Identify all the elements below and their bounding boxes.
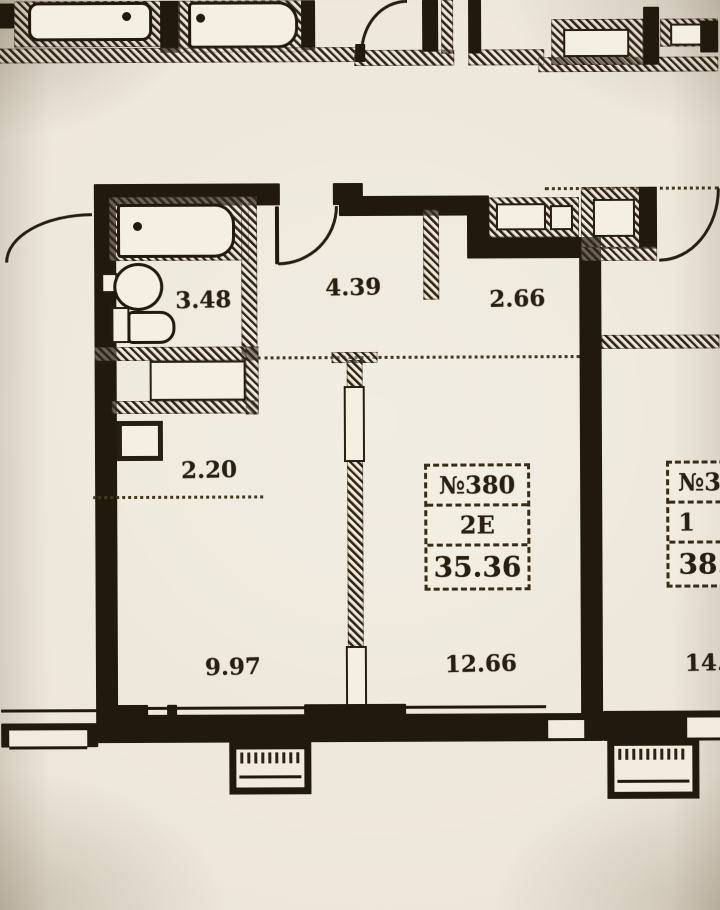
wall-right — [579, 237, 603, 739]
wall-closet — [112, 400, 259, 414]
wall-pier — [584, 703, 603, 717]
floor-plan-scan: 3.48 4.39 2.66 2.20 9.97 12.66 14. №380 … — [0, 0, 720, 910]
zone-dotted-line — [93, 495, 263, 499]
wall — [643, 7, 659, 65]
room-area-corridor: 2.20 — [176, 458, 242, 482]
wall-left — [94, 184, 118, 741]
wall-neighbor — [601, 334, 719, 349]
door-arc — [360, 0, 407, 53]
wall-bathroom — [95, 346, 258, 361]
door-arc — [659, 188, 720, 261]
neighbor-unit-badge: №3 1 38. — [666, 460, 720, 587]
duct-opening — [496, 203, 546, 230]
room-area-living: 12.66 — [444, 652, 518, 677]
room-area-neighbor: 14. — [685, 651, 720, 675]
unit-type: 2Е — [427, 506, 527, 546]
balcony-hatch — [240, 752, 300, 763]
wall-hatched — [0, 47, 360, 64]
wall — [700, 20, 718, 52]
room-area-bathroom: 3.48 — [167, 288, 239, 313]
wall-hatched — [581, 247, 657, 261]
bathtub-drain-icon — [122, 12, 131, 21]
balcony-hatch — [618, 749, 688, 760]
neighbor-unit-type: 1 — [669, 503, 720, 543]
neighbor-unit-area: 38. — [669, 543, 720, 584]
window-sill-line — [1, 709, 96, 712]
sink-icon — [113, 263, 163, 311]
wardrobe-icon — [150, 360, 246, 400]
neighbor-unit-number: №3 — [669, 463, 720, 503]
bathtub-drain-icon — [133, 222, 142, 231]
entry-door-arc — [278, 206, 338, 265]
duct-opening — [670, 24, 702, 46]
duct-opening — [563, 29, 629, 57]
room-area-bedroom: 9.97 — [201, 655, 265, 679]
unit-area: 35.36 — [427, 546, 527, 587]
door-leaf — [344, 386, 365, 462]
zone-dotted-line — [258, 355, 580, 359]
room-area-hallway: 4.39 — [317, 275, 389, 300]
wall-pier — [304, 704, 406, 718]
entry-door-leaf — [275, 206, 279, 264]
duct-opening — [593, 199, 635, 237]
wall-hatched — [441, 0, 453, 54]
unit-badge: №380 2Е 35.36 — [424, 463, 531, 590]
washing-machine-icon — [117, 421, 163, 461]
wall-stub — [423, 210, 439, 300]
balcony — [607, 739, 699, 799]
wall — [422, 0, 438, 52]
balcony-line — [239, 775, 301, 778]
door-leaf — [346, 646, 367, 708]
balcony-line — [617, 780, 689, 783]
window-sill-line — [148, 706, 306, 710]
wall — [639, 187, 657, 249]
duct-opening — [550, 205, 573, 230]
bathtub-icon — [188, 1, 298, 48]
floor-plan: 3.48 4.39 2.66 2.20 9.97 12.66 14. №380 … — [0, 0, 720, 910]
balcony — [229, 742, 311, 794]
wall-bathroom — [241, 196, 258, 360]
door-leaf — [355, 44, 365, 62]
window — [687, 714, 720, 740]
unit-number: №380 — [427, 466, 527, 506]
bathtub-icon — [28, 2, 152, 42]
door-arc — [5, 213, 92, 262]
bathtub-drain-icon — [196, 14, 205, 23]
wall — [0, 4, 14, 29]
bathtub-icon — [117, 204, 235, 259]
window-sill-line — [406, 705, 546, 709]
wall-pier — [96, 705, 148, 719]
window — [548, 717, 584, 741]
toilet-bowl-icon — [127, 311, 175, 344]
window — [9, 727, 87, 749]
wall — [301, 0, 315, 50]
wall — [468, 0, 481, 54]
room-area-entry-hall: 2.66 — [483, 287, 551, 311]
